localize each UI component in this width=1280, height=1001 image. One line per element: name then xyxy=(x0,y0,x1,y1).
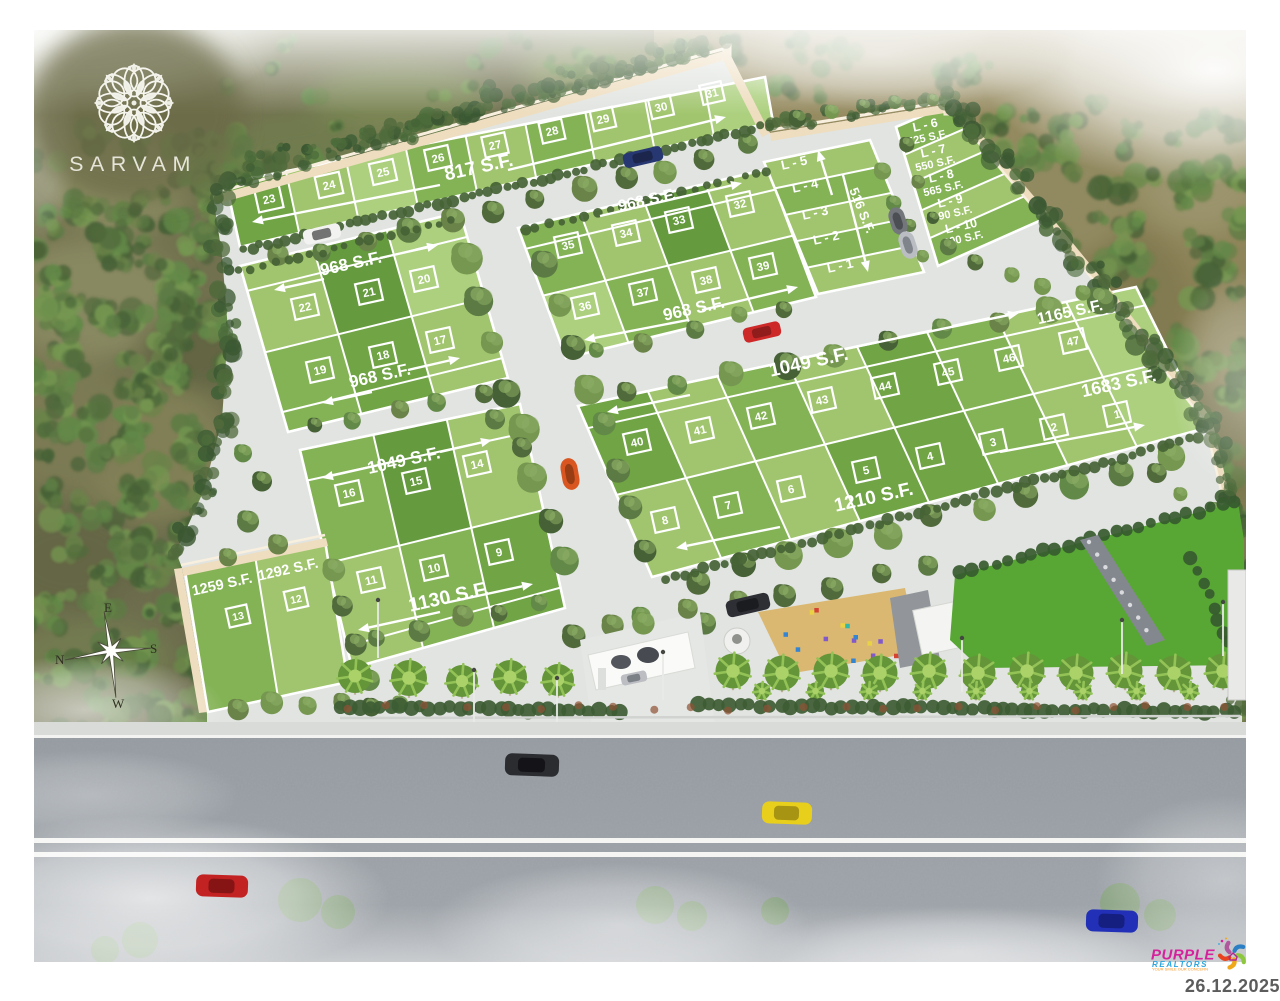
svg-text:SARVAM: SARVAM xyxy=(69,152,197,176)
svg-text:W: W xyxy=(112,696,125,711)
svg-text:YOUR SMILE OUR CONCERN: YOUR SMILE OUR CONCERN xyxy=(1152,967,1208,972)
svg-text:S: S xyxy=(150,641,157,656)
svg-text:E: E xyxy=(104,600,112,615)
svg-text:26.12.2025: 26.12.2025 xyxy=(1185,976,1280,996)
svg-text:N: N xyxy=(55,652,65,667)
